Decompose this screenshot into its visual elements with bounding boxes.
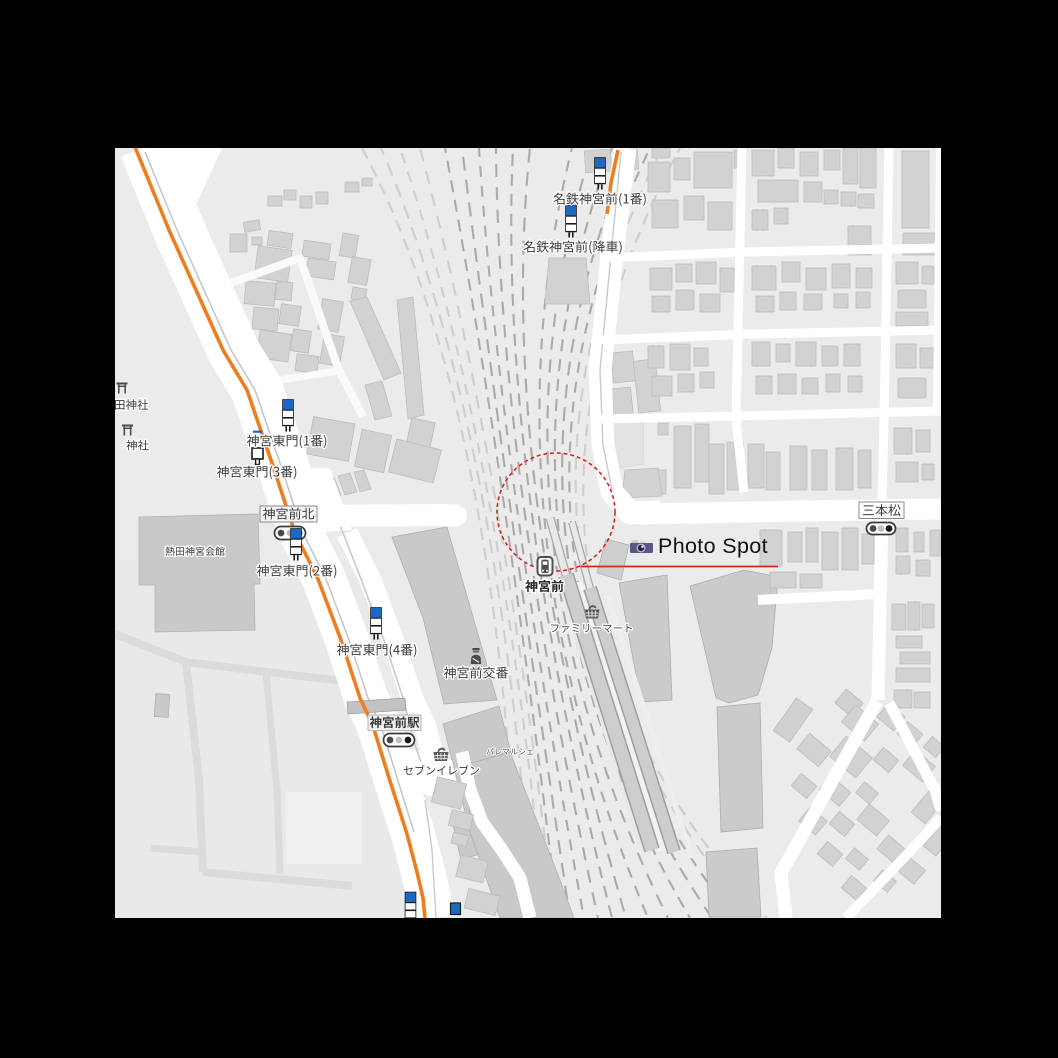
svg-text:Photo Spot: Photo Spot xyxy=(658,534,768,558)
